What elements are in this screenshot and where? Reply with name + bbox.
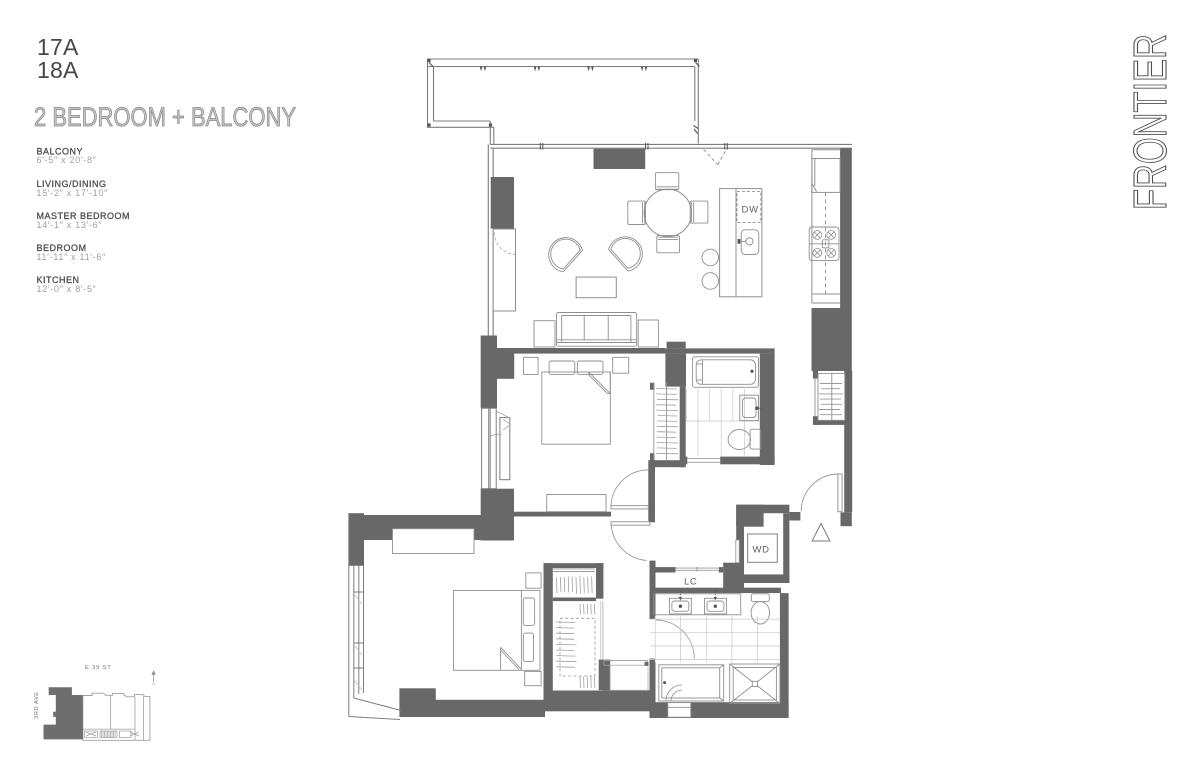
svg-text:12′-0″ x 8′-5″: 12′-0″ x 8′-5″ — [37, 284, 97, 294]
svg-text:LC: LC — [684, 577, 697, 588]
svg-text:WD: WD — [753, 545, 770, 556]
svg-text:15′-2″ x 17′-10″: 15′-2″ x 17′-10″ — [37, 188, 109, 198]
svg-text:DW: DW — [742, 205, 759, 216]
svg-text:E 39 ST: E 39 ST — [85, 665, 112, 671]
svg-text:FRONTIER: FRONTIER — [1124, 34, 1176, 210]
svg-text:11′-11″ x 11′-6″: 11′-11″ x 11′-6″ — [37, 252, 107, 262]
svg-text:3RD AVE: 3RD AVE — [34, 691, 40, 719]
svg-text:2 BEDROOM + BALCONY: 2 BEDROOM + BALCONY — [34, 102, 296, 132]
svg-text:6′-5″ x 20′-8″: 6′-5″ x 20′-8″ — [37, 155, 97, 165]
svg-text:14′-1″ x 13′-6″: 14′-1″ x 13′-6″ — [37, 220, 103, 230]
svg-text:18A: 18A — [37, 57, 79, 83]
